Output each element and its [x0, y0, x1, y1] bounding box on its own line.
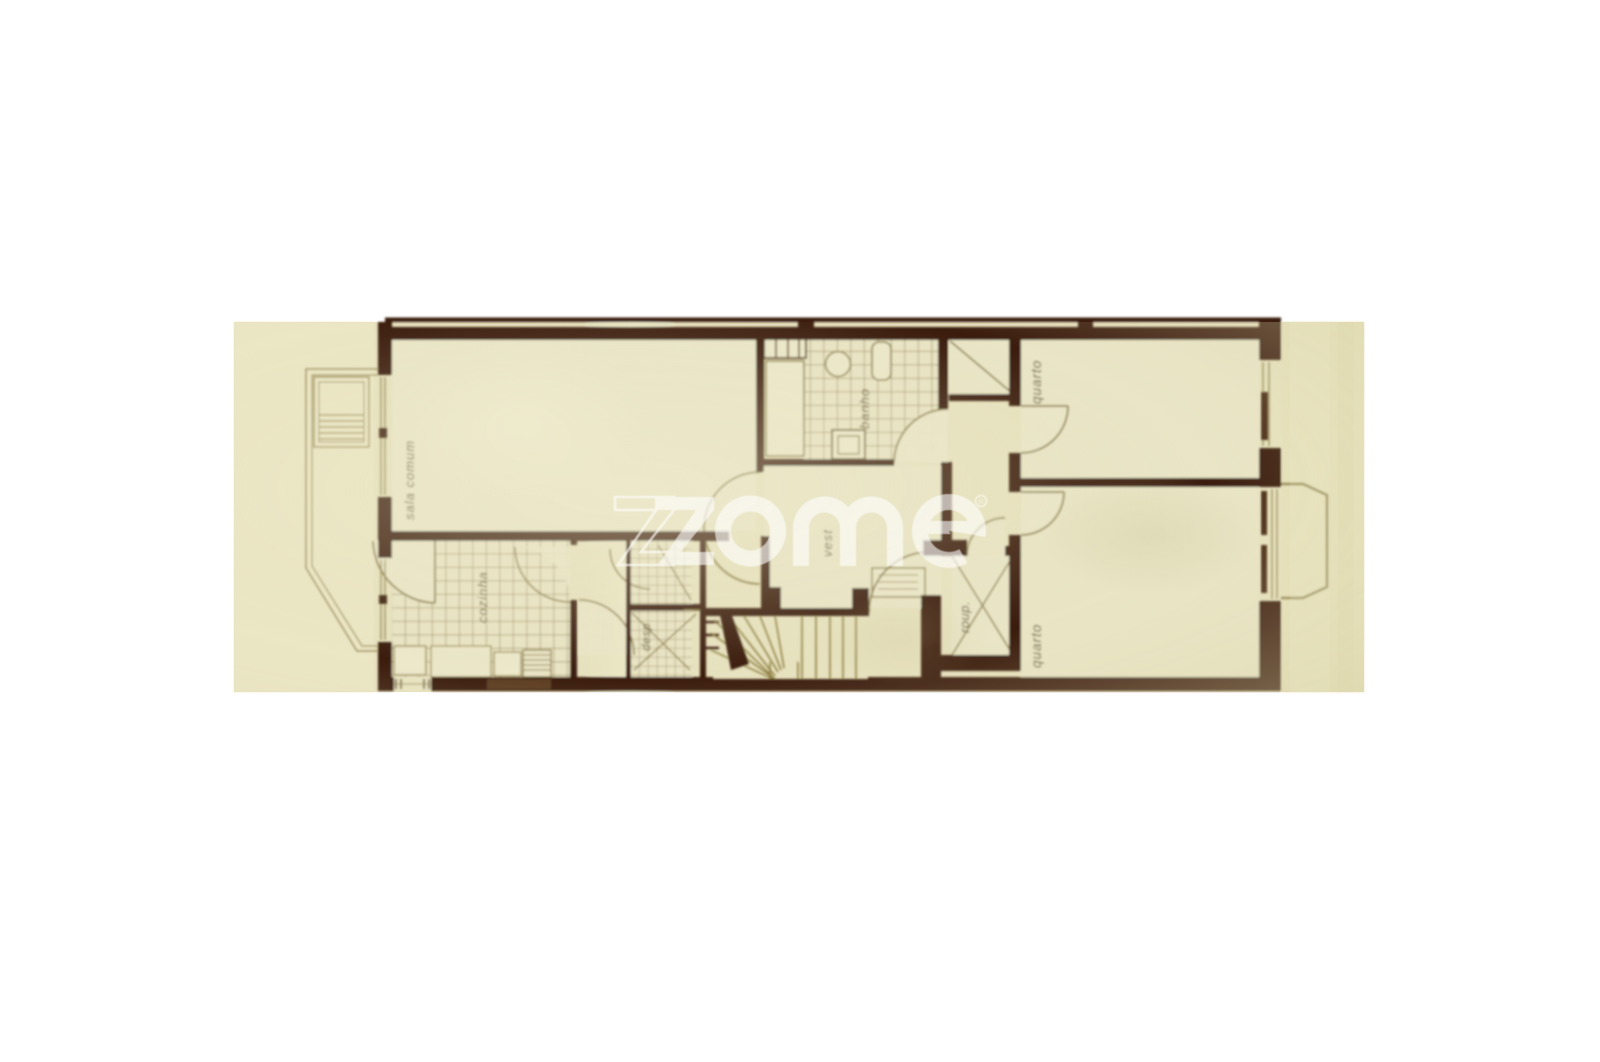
svg-text:R: R	[978, 497, 984, 506]
